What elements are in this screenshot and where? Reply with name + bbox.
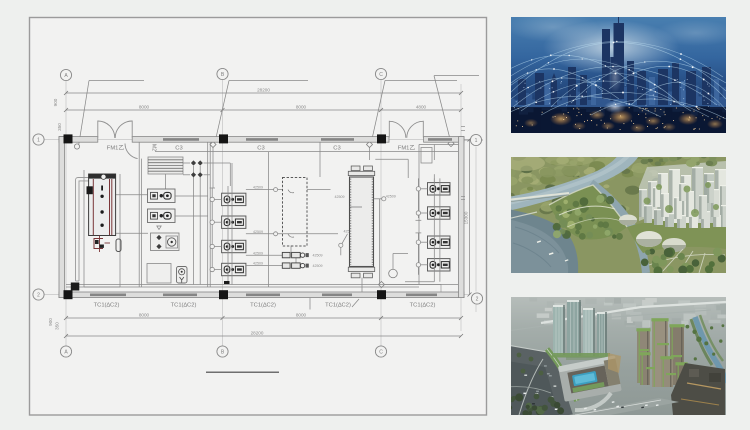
- svg-text:FM1乙: FM1乙: [398, 145, 416, 152]
- svg-text:42509: 42509: [335, 195, 345, 199]
- svg-text:42509: 42509: [313, 254, 323, 258]
- svg-text:1: 1: [37, 138, 40, 144]
- svg-text:28200: 28200: [251, 330, 264, 335]
- svg-text:C3: C3: [175, 146, 182, 152]
- svg-text:TC1(∆C2): TC1(∆C2): [171, 303, 197, 309]
- svg-text:8000: 8000: [296, 104, 307, 109]
- svg-text:FM1乙: FM1乙: [107, 145, 125, 152]
- svg-text:350: 350: [57, 123, 62, 131]
- svg-text:42509: 42509: [253, 230, 263, 234]
- svg-text:2: 2: [37, 293, 40, 299]
- svg-text:C: C: [379, 72, 383, 78]
- svg-text:8000: 8000: [296, 312, 307, 317]
- svg-text:350: 350: [55, 322, 60, 330]
- svg-text:C3: C3: [257, 146, 264, 152]
- svg-text:1: 1: [475, 138, 478, 144]
- svg-text:42509: 42509: [386, 194, 396, 198]
- svg-text:8000: 8000: [139, 104, 150, 109]
- svg-text:TC1(∆C2): TC1(∆C2): [325, 303, 351, 309]
- svg-text:2: 2: [476, 297, 479, 303]
- svg-text:15300: 15300: [464, 211, 469, 224]
- svg-text:42509: 42509: [253, 262, 263, 266]
- svg-text:TC1(∆C2): TC1(∆C2): [410, 303, 436, 309]
- svg-text:42509: 42509: [313, 264, 323, 268]
- svg-text:900: 900: [48, 318, 53, 326]
- svg-text:4800: 4800: [416, 104, 427, 109]
- svg-text:TC1(∆C2): TC1(∆C2): [94, 303, 120, 309]
- svg-text:900: 900: [53, 98, 58, 106]
- svg-text:28200: 28200: [257, 87, 270, 92]
- svg-text:TC1(∆C2): TC1(∆C2): [250, 303, 276, 309]
- svg-text:C: C: [379, 350, 383, 356]
- svg-text:M2: M2: [151, 144, 157, 151]
- svg-text:C3: C3: [333, 146, 340, 152]
- svg-text:42509: 42509: [253, 251, 263, 255]
- svg-text:8000: 8000: [139, 312, 150, 317]
- svg-text:42509: 42509: [253, 186, 263, 190]
